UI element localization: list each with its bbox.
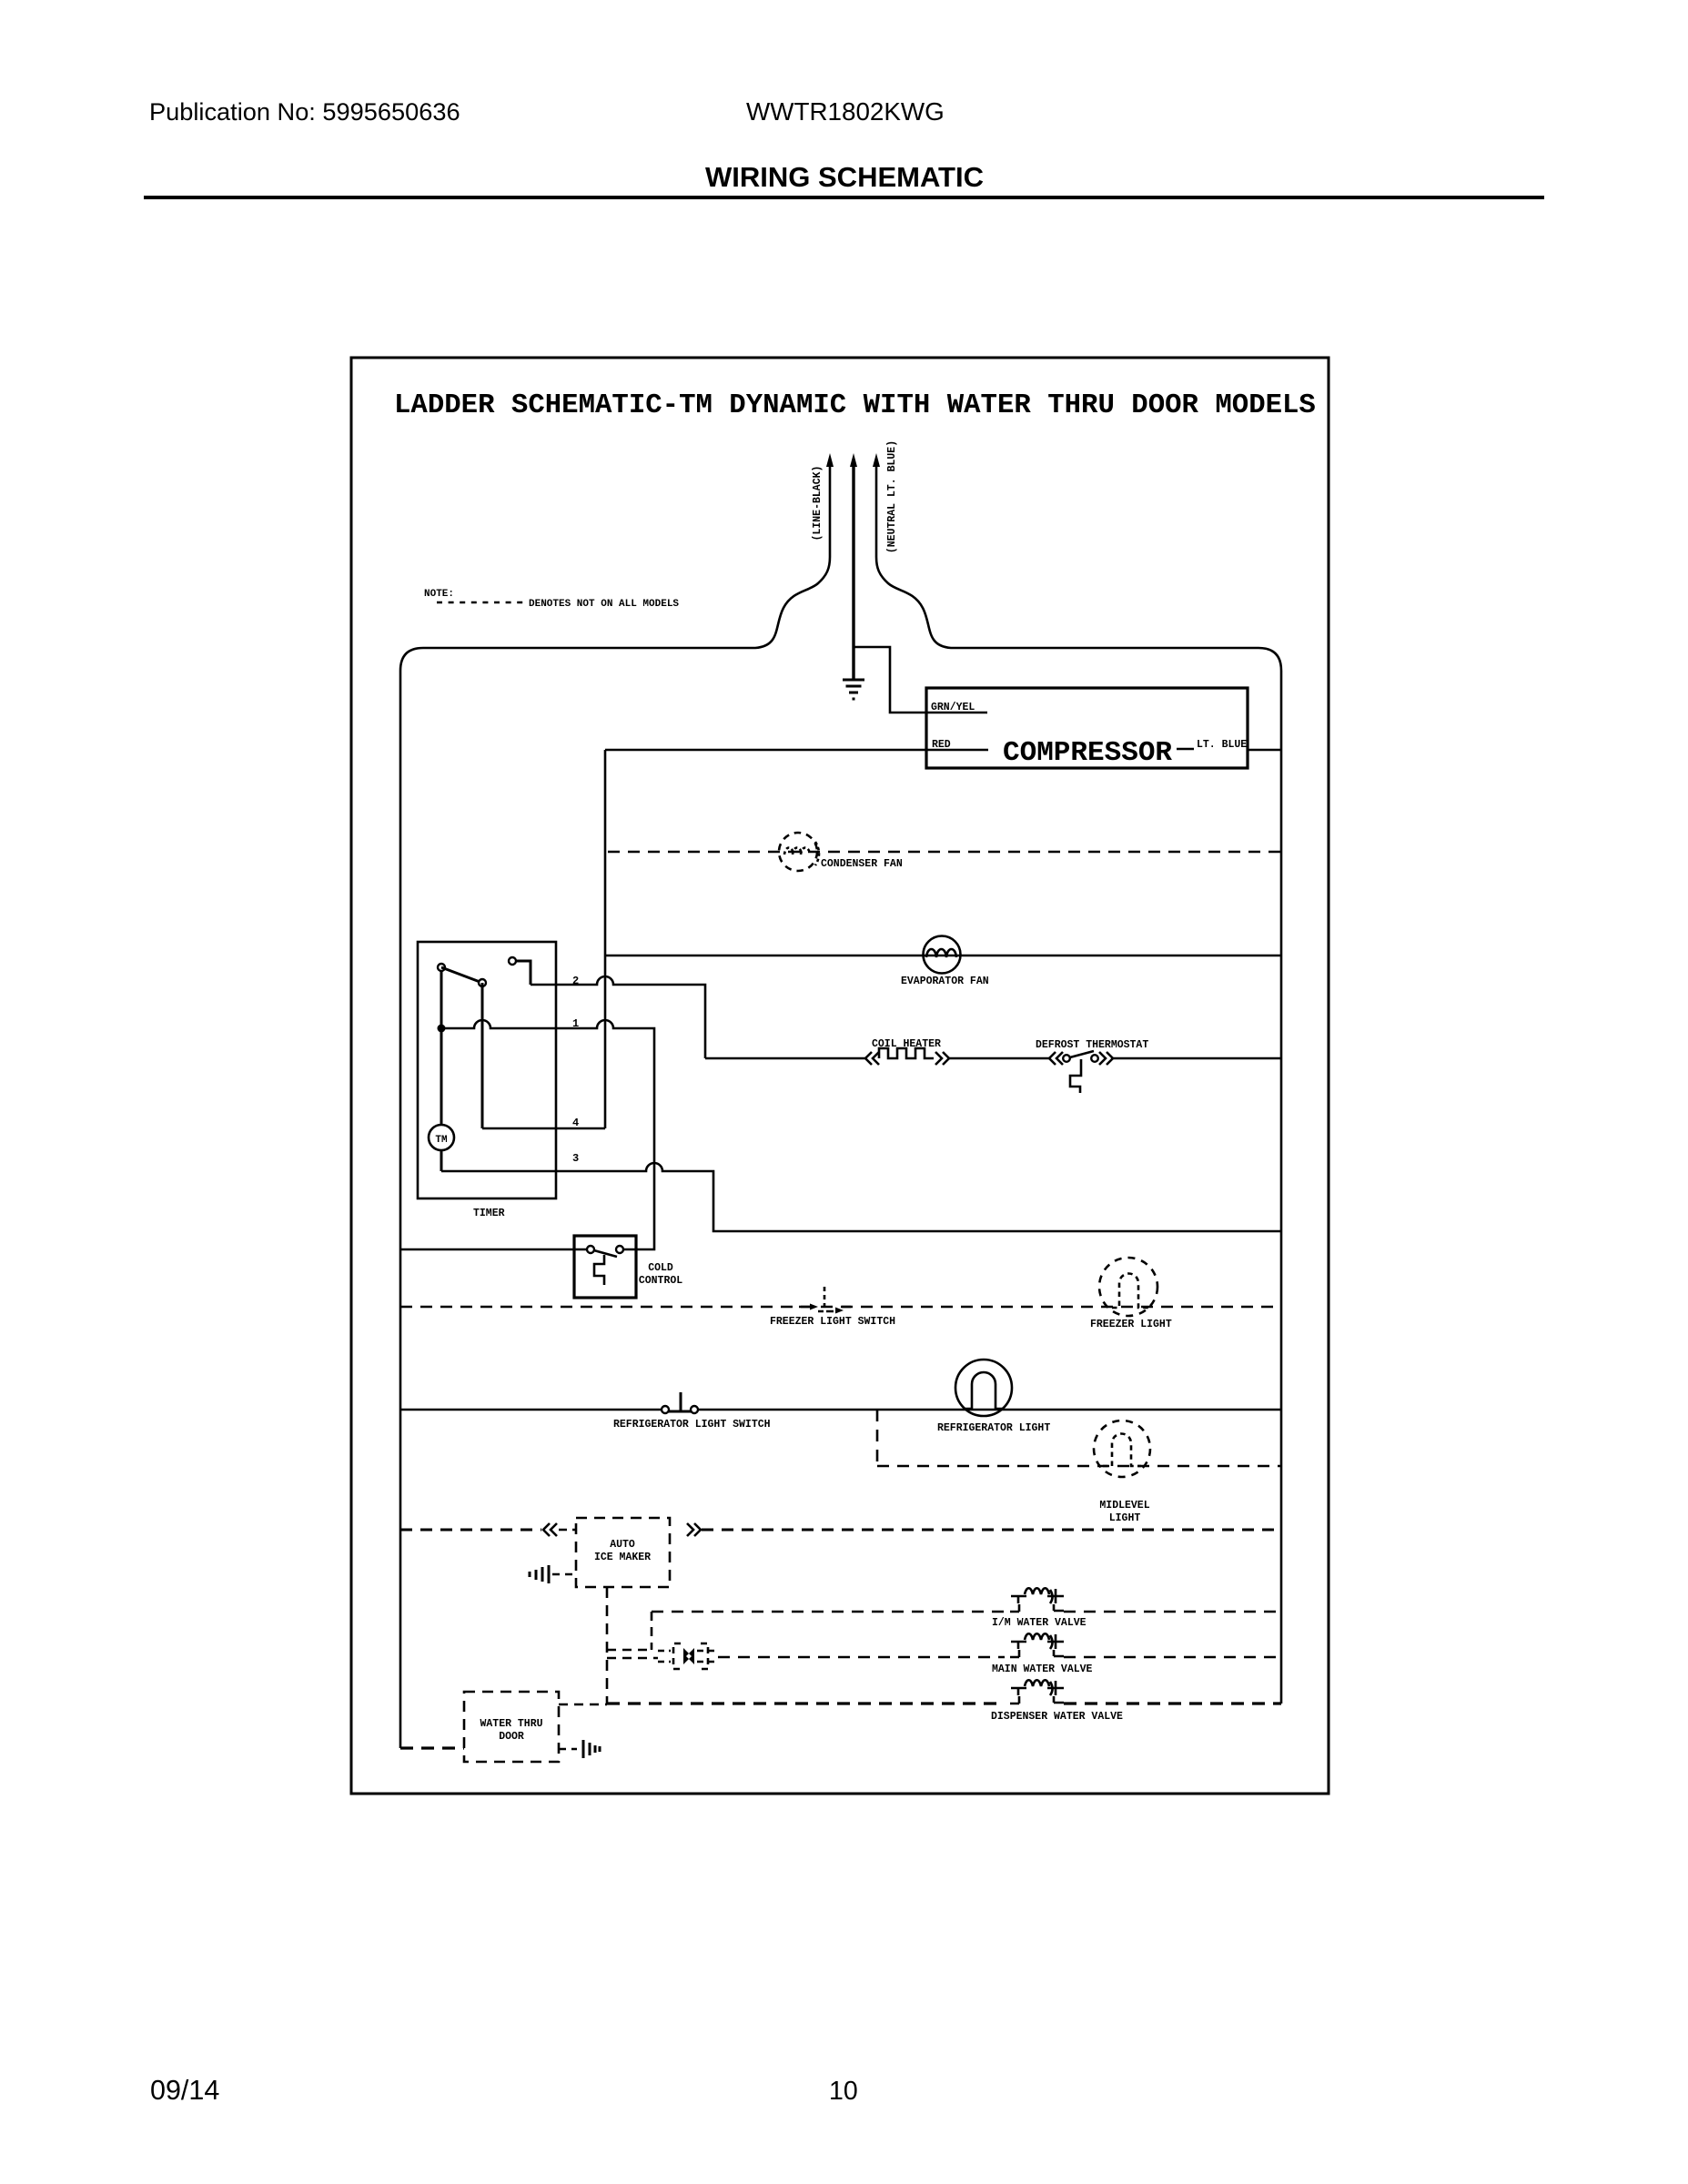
svg-text:LADDER SCHEMATIC-TM DYNAMIC WI: LADDER SCHEMATIC-TM DYNAMIC WITH WATER T…	[394, 389, 1316, 421]
svg-text:RED: RED	[932, 739, 951, 751]
svg-text:1: 1	[572, 1017, 579, 1030]
svg-text:LT. BLUE: LT. BLUE	[1197, 739, 1247, 751]
svg-text:4: 4	[572, 1117, 579, 1129]
svg-text:Publication No: 5995650636: Publication No: 5995650636	[149, 97, 460, 126]
svg-text:DOOR: DOOR	[499, 1731, 524, 1743]
svg-text:WATER THRU: WATER THRU	[480, 1718, 542, 1730]
svg-text:COLD: COLD	[648, 1262, 673, 1274]
svg-text:09/14: 09/14	[150, 2075, 219, 2106]
svg-text:WWTR1802KWG: WWTR1802KWG	[746, 97, 945, 126]
svg-text:10: 10	[829, 2077, 858, 2106]
svg-text:I/M WATER VALVE: I/M WATER VALVE	[992, 1617, 1087, 1629]
svg-text:COIL HEATER: COIL HEATER	[872, 1038, 941, 1050]
svg-text:DEFROST THERMOSTAT: DEFROST THERMOSTAT	[1036, 1039, 1148, 1051]
svg-text:MAIN WATER VALVE: MAIN WATER VALVE	[992, 1663, 1093, 1675]
svg-text:3: 3	[572, 1152, 579, 1165]
svg-text:CONTROL: CONTROL	[639, 1275, 682, 1287]
svg-text:REFRIGERATOR LIGHT SWITCH: REFRIGERATOR LIGHT SWITCH	[613, 1419, 771, 1431]
svg-text:(NEUTRAL LT. BLUE): (NEUTRAL LT. BLUE)	[886, 440, 898, 553]
svg-text:LIGHT: LIGHT	[1109, 1512, 1141, 1524]
svg-text:MIDLEVEL: MIDLEVEL	[1099, 1500, 1149, 1512]
svg-text:FREEZER LIGHT: FREEZER LIGHT	[1090, 1319, 1172, 1330]
svg-text:CONDENSER FAN: CONDENSER FAN	[821, 858, 903, 870]
svg-text:FREEZER LIGHT SWITCH: FREEZER LIGHT SWITCH	[770, 1316, 895, 1328]
svg-text:COMPRESSOR: COMPRESSOR	[1003, 737, 1172, 769]
svg-text:NOTE:: NOTE:	[424, 589, 454, 600]
svg-text:WIRING SCHEMATIC: WIRING SCHEMATIC	[705, 161, 984, 193]
svg-text:TIMER: TIMER	[473, 1208, 505, 1219]
svg-text:DENOTES NOT ON ALL MODELS: DENOTES NOT ON ALL MODELS	[529, 599, 679, 610]
svg-text:ICE MAKER: ICE MAKER	[594, 1552, 651, 1563]
svg-text:2: 2	[572, 975, 579, 987]
svg-text:TM: TM	[435, 1135, 448, 1146]
svg-text:REFRIGERATOR LIGHT: REFRIGERATOR LIGHT	[937, 1422, 1050, 1434]
svg-text:DISPENSER WATER VALVE: DISPENSER WATER VALVE	[991, 1711, 1123, 1723]
svg-text:(LINE-BLACK): (LINE-BLACK)	[812, 466, 824, 541]
svg-text:GRN/YEL: GRN/YEL	[931, 702, 975, 713]
svg-text:AUTO: AUTO	[610, 1539, 635, 1551]
svg-text:EVAPORATOR FAN: EVAPORATOR FAN	[901, 976, 989, 987]
